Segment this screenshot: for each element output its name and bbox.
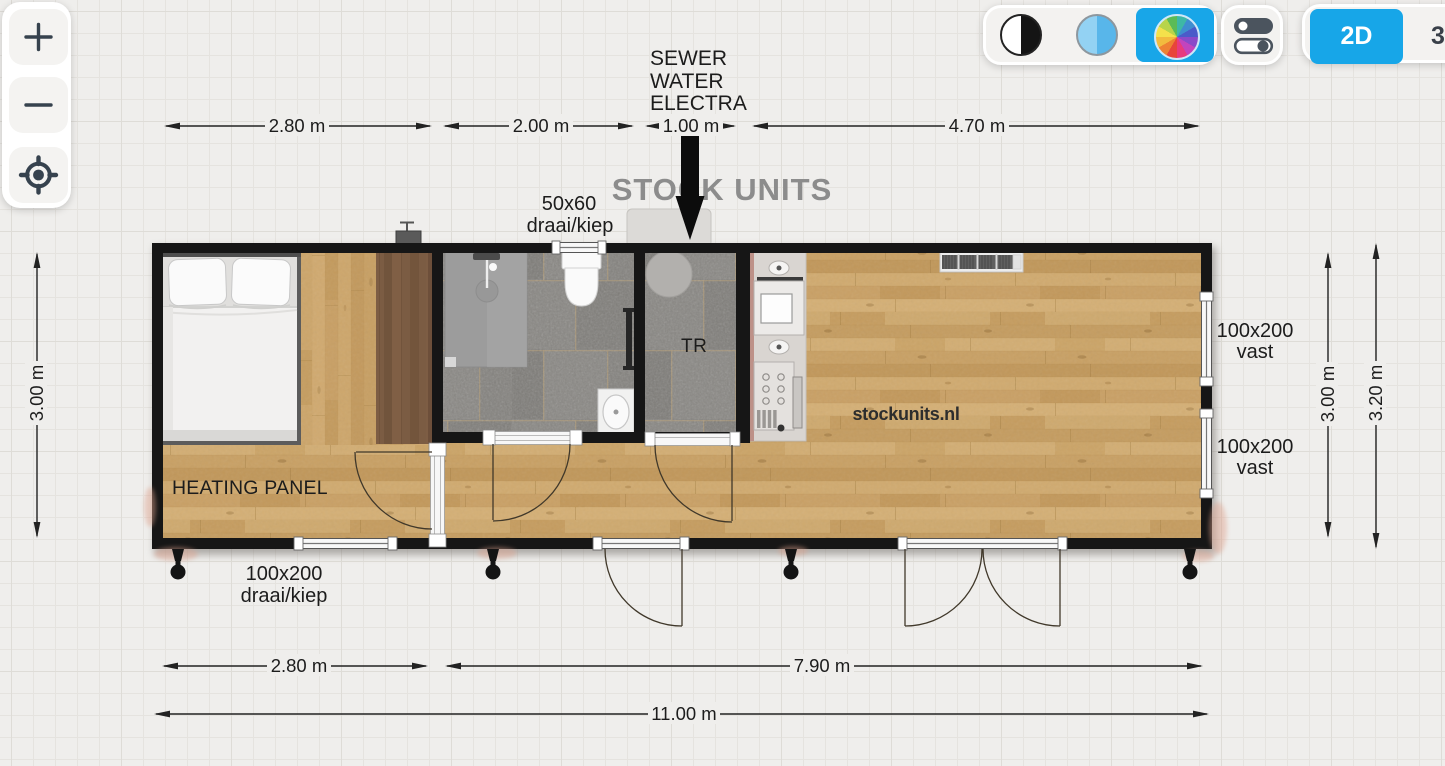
svg-text:draai/kiep: draai/kiep: [241, 585, 328, 607]
svg-text:2.80 m: 2.80 m: [271, 655, 328, 676]
svg-text:STOCK UNITS: STOCK UNITS: [612, 172, 833, 207]
svg-text:50x60: 50x60: [542, 193, 597, 215]
svg-text:vast: vast: [1237, 341, 1274, 363]
svg-text:3.00 m: 3.00 m: [1317, 366, 1338, 423]
svg-text:TR: TR: [681, 336, 707, 357]
svg-text:SEWER: SEWER: [650, 47, 727, 70]
svg-text:2.80 m: 2.80 m: [269, 115, 326, 136]
svg-text:100x200: 100x200: [246, 563, 323, 585]
svg-text:ELECTRA: ELECTRA: [650, 92, 747, 115]
svg-text:11.00 m: 11.00 m: [651, 703, 716, 724]
svg-text:7.90 m: 7.90 m: [794, 655, 851, 676]
svg-text:1.00 m: 1.00 m: [663, 115, 720, 136]
svg-text:3.00 m: 3.00 m: [26, 365, 47, 422]
svg-text:vast: vast: [1237, 457, 1274, 479]
svg-text:stockunits.nl: stockunits.nl: [852, 404, 959, 424]
svg-text:HEATING PANEL: HEATING PANEL: [172, 477, 328, 499]
svg-text:WATER: WATER: [650, 70, 724, 93]
svg-text:4.70 m: 4.70 m: [949, 115, 1006, 136]
svg-text:3.20 m: 3.20 m: [1365, 365, 1386, 422]
svg-text:100x200: 100x200: [1217, 320, 1294, 342]
svg-text:2.00 m: 2.00 m: [513, 115, 570, 136]
svg-text:100x200: 100x200: [1217, 436, 1294, 458]
svg-text:draai/kiep: draai/kiep: [527, 215, 614, 237]
